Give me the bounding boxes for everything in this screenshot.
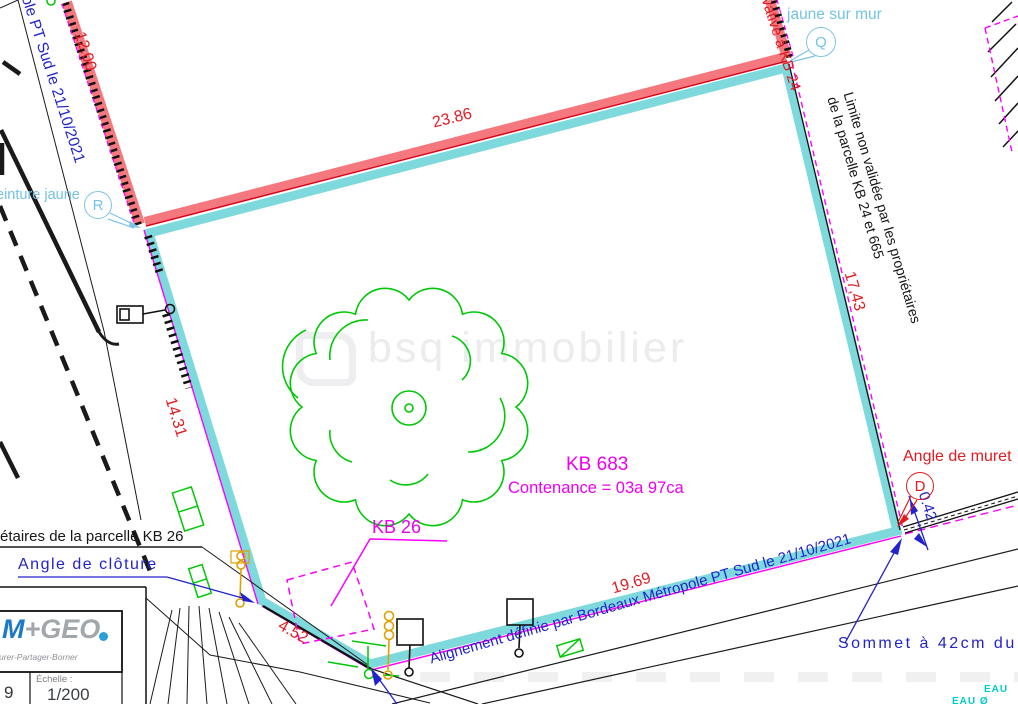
- angle-cloture-label: Angle de clôture: [18, 557, 158, 574]
- clou-label-line2: jaune sur mur: [787, 7, 882, 23]
- magenta-boundary-lines: [144, 63, 1018, 670]
- scale-value: 1/200: [47, 686, 90, 704]
- angle-muret-label: Angle de muret: [903, 449, 1012, 466]
- plan-linework: [0, 0, 1018, 704]
- survey-plan: bsq immobilier: [0, 0, 1018, 704]
- eau-label-2: EAU Ø: [952, 697, 989, 704]
- boundary-wall-marks: [148, 64, 900, 669]
- point-marker-q: Q: [806, 27, 836, 57]
- eau-label: EAU: [984, 685, 1008, 696]
- parcel-area-label: Contenance = 03a 97ca: [508, 480, 684, 497]
- scale-label: Échelle :: [36, 675, 72, 685]
- logo-geo: GEO: [40, 614, 100, 644]
- owners-note-label: étaires de la parcelle KB 26: [0, 529, 183, 545]
- tree-symbol: [283, 288, 528, 525]
- sommet-label: Sommet à 42cm du: [838, 636, 1017, 653]
- neighbor-parcel-label: KB 26: [372, 518, 421, 537]
- logo-plus: +: [25, 614, 41, 644]
- title-block-number: 9: [4, 684, 13, 702]
- parcel-id-label: KB 683: [566, 455, 628, 475]
- logo-dot: [99, 632, 108, 641]
- point-marker-d: D: [906, 472, 934, 500]
- logo: M+GEO: [2, 615, 100, 643]
- red-wall-bands: [62, 0, 793, 226]
- point-marker-r: R: [84, 191, 112, 219]
- hatched-area-top-right: [985, 2, 1018, 152]
- logo-m: M: [2, 614, 25, 644]
- peinture-jaune-label: einture jaune: [0, 188, 80, 203]
- logo-tagline: esurer-Partager-Borner: [0, 653, 78, 662]
- clou-label-line1: Antérieur du clou: [787, 0, 904, 3]
